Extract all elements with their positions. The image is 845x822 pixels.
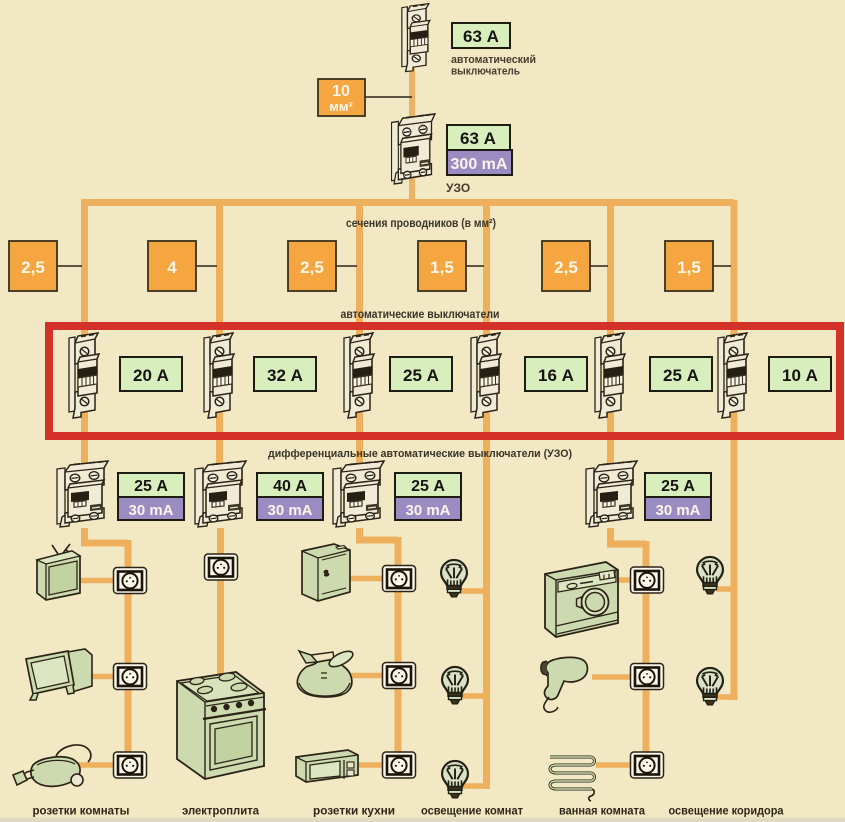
svg-text:16 А: 16 А (538, 366, 574, 385)
svg-text:автоматический: автоматический (451, 54, 536, 66)
svg-text:63 А: 63 А (463, 27, 499, 46)
svg-text:25 А: 25 А (663, 366, 699, 385)
svg-text:сечения проводников (в мм²): сечения проводников (в мм²) (346, 216, 496, 230)
svg-text:мм²: мм² (329, 99, 353, 114)
svg-text:20 А: 20 А (133, 366, 169, 385)
svg-text:32 А: 32 А (267, 366, 303, 385)
svg-text:розетки комнаты: розетки комнаты (33, 804, 130, 818)
svg-text:300 mA: 300 mA (451, 156, 508, 173)
svg-text:30 mA: 30 mA (655, 502, 700, 519)
svg-text:1,5: 1,5 (677, 258, 701, 277)
svg-text:2,5: 2,5 (554, 258, 578, 277)
svg-text:УЗО: УЗО (446, 181, 470, 195)
svg-text:2,5: 2,5 (21, 258, 45, 277)
svg-text:63 А: 63 А (460, 129, 496, 148)
svg-text:4: 4 (167, 258, 177, 277)
svg-text:25 А: 25 А (411, 478, 445, 495)
svg-text:10 А: 10 А (782, 366, 818, 385)
svg-text:30 mA: 30 mA (405, 502, 450, 519)
svg-text:25 А: 25 А (134, 478, 168, 495)
svg-text:автоматические выключатели: автоматические выключатели (341, 307, 500, 321)
svg-text:30 mA: 30 mA (128, 502, 173, 519)
svg-text:выключатель: выключатель (451, 66, 520, 78)
svg-text:освещение комнат: освещение комнат (421, 804, 523, 818)
svg-text:25 А: 25 А (661, 478, 695, 495)
svg-text:ванная комната: ванная комната (559, 804, 645, 818)
svg-text:2,5: 2,5 (300, 258, 324, 277)
svg-text:1,5: 1,5 (430, 258, 454, 277)
svg-text:25 А: 25 А (403, 366, 439, 385)
svg-text:освещение коридора: освещение коридора (669, 804, 784, 818)
svg-text:30 mA: 30 mA (267, 502, 312, 519)
svg-text:40 А: 40 А (273, 478, 307, 495)
svg-text:розетки кухни: розетки кухни (313, 804, 395, 818)
svg-text:электроплита: электроплита (182, 804, 259, 818)
svg-text:дифференциальные автоматически: дифференциальные автоматические выключат… (268, 448, 572, 460)
svg-text:10: 10 (332, 83, 350, 100)
